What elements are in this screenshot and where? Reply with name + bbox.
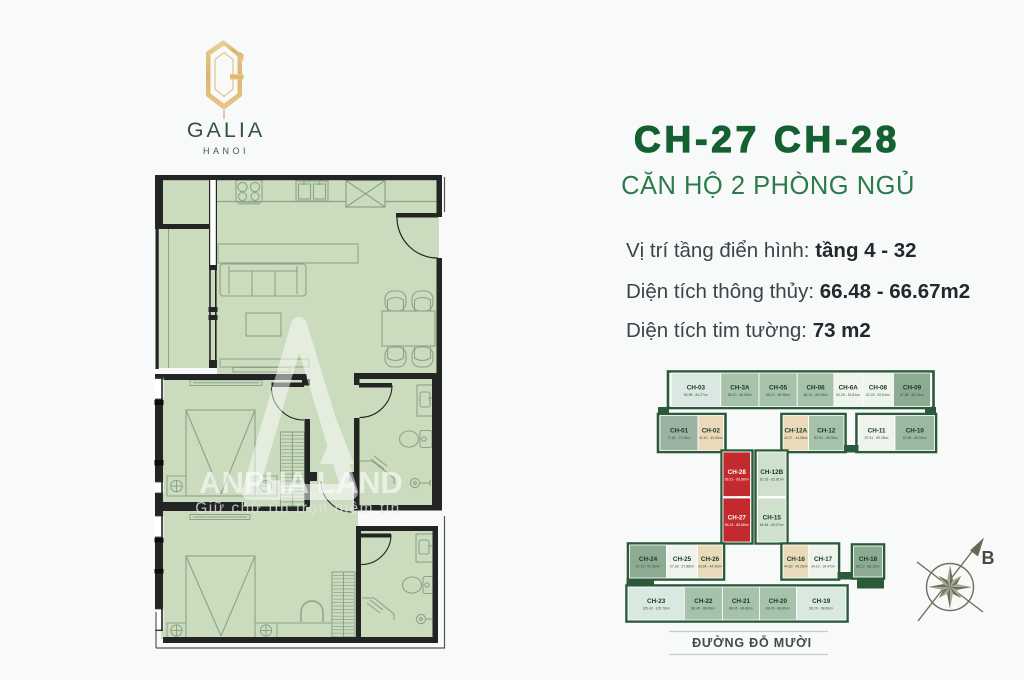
svg-text:88.45 - 88.86m²: 88.45 - 88.86m² (729, 607, 754, 611)
svg-text:CH-23: CH-23 (647, 598, 666, 605)
svg-text:98.29 - 98.96m²: 98.29 - 98.96m² (809, 607, 834, 611)
svg-text:CH-12A: CH-12A (784, 428, 807, 435)
svg-text:CH-16: CH-16 (787, 556, 806, 563)
svg-text:CH-11: CH-11 (868, 428, 886, 435)
svg-text:82.52 - 88.28m²: 82.52 - 88.28m² (814, 436, 839, 440)
svg-text:HANOI: HANOI (203, 146, 249, 156)
svg-text:Diện tích tim tường: 73 m2: Diện tích tim tường: 73 m2 (626, 319, 871, 342)
svg-text:ĐƯỜNG ĐỖ MƯỜI: ĐƯỜNG ĐỖ MƯỜI (692, 635, 812, 650)
svg-text:CH-27: CH-27 (728, 515, 747, 522)
svg-text:B: B (982, 548, 995, 568)
svg-text:88.45 - 88.86m²: 88.45 - 88.86m² (691, 607, 716, 611)
svg-text:88.10 - 88.98m²: 88.10 - 88.98m² (804, 393, 829, 397)
svg-text:CH-18: CH-18 (859, 556, 878, 563)
svg-text:Diện tích thông thủy: 66.48 -: Diện tích thông thủy: 66.48 - 66.67m2 (626, 280, 970, 303)
svg-text:88.10 - 88.98m²: 88.10 - 88.98m² (728, 393, 753, 397)
svg-text:CH-3A: CH-3A (730, 384, 750, 391)
svg-text:CH-28: CH-28 (728, 469, 747, 476)
svg-text:88.10 - 88.98m²: 88.10 - 88.98m² (766, 393, 791, 397)
svg-text:Vị trí tầng điển hình: tầng 4: Vị trí tầng điển hình: tầng 4 - 32 (626, 239, 917, 262)
svg-text:CH-22: CH-22 (694, 598, 713, 605)
svg-text:CH-25: CH-25 (673, 556, 692, 563)
svg-text:CH-17: CH-17 (814, 556, 833, 563)
svg-text:CH-01: CH-01 (670, 428, 689, 435)
svg-text:62.18 - 62.81m²: 62.18 - 62.81m² (760, 477, 785, 481)
svg-text:43.10 - 43.85m²: 43.10 - 43.85m² (699, 436, 724, 440)
svg-text:CĂN HỘ 2 PHÒNG NGỦ: CĂN HỘ 2 PHÒNG NGỦ (621, 170, 915, 200)
svg-text:52.28 - 52.81m²: 52.28 - 52.81m² (836, 393, 861, 397)
svg-text:88.45 - 88.86m²: 88.45 - 88.86m² (766, 607, 791, 611)
svg-text:CH-05: CH-05 (769, 384, 788, 391)
svg-text:44.27 - 44.58m²: 44.27 - 44.58m² (784, 436, 809, 440)
svg-text:87.88 - 88.13m²: 87.88 - 88.13m² (900, 393, 925, 397)
svg-text:CH-08: CH-08 (869, 384, 888, 391)
svg-text:CH-15: CH-15 (763, 515, 782, 522)
svg-text:CH-02: CH-02 (702, 428, 721, 435)
svg-text:44.83 - 45.28m²: 44.83 - 45.28m² (784, 565, 809, 569)
svg-text:CH-26: CH-26 (701, 556, 720, 563)
svg-text:71.84 - 71.98m²: 71.84 - 71.98m² (667, 436, 692, 440)
svg-text:43.84 - 44.26m²: 43.84 - 44.26m² (698, 565, 723, 569)
svg-text:27.33 - 27.88m²: 27.33 - 27.88m² (670, 565, 695, 569)
svg-text:34.13 - 34.47m²: 34.13 - 34.47m² (811, 565, 836, 569)
svg-text:66.21 - 66.68m²: 66.21 - 66.68m² (725, 477, 750, 481)
svg-text:87.51 - 89.28m²: 87.51 - 89.28m² (865, 436, 890, 440)
svg-text:CH-21: CH-21 (732, 598, 751, 605)
svg-text:CH-19: CH-19 (812, 598, 831, 605)
svg-text:66.23 - 66.68m²: 66.23 - 66.68m² (725, 523, 750, 527)
svg-text:GALIA: GALIA (187, 118, 265, 142)
svg-text:CH-06: CH-06 (806, 384, 825, 391)
svg-text:CH-09: CH-09 (903, 384, 922, 391)
svg-text:CH-12B: CH-12B (760, 469, 783, 476)
svg-text:CH-20: CH-20 (769, 598, 788, 605)
svg-text:87.88 - 88.54m²: 87.88 - 88.54m² (903, 436, 928, 440)
svg-text:CH-6A: CH-6A (839, 384, 859, 391)
svg-text:105.42 - 105.78m²: 105.42 - 105.78m² (642, 607, 671, 611)
svg-text:CH-24: CH-24 (639, 556, 658, 563)
svg-text:88.12 - 88.18m²: 88.12 - 88.18m² (856, 565, 881, 569)
svg-text:52.28 - 52.81m²: 52.28 - 52.81m² (866, 393, 891, 397)
svg-text:ANPHA LAND: ANPHA LAND (199, 465, 403, 500)
svg-text:CH-03: CH-03 (687, 384, 706, 391)
svg-text:CH-12: CH-12 (817, 428, 836, 435)
svg-text:CH-27 CH-28: CH-27 CH-28 (634, 119, 900, 160)
svg-text:80.98 - 84.27m²: 80.98 - 84.27m² (684, 393, 709, 397)
svg-text:Giữ chữ tín trọn niềm tin: Giữ chữ tín trọn niềm tin (195, 500, 401, 517)
svg-text:68.48 - 69.07m²: 68.48 - 69.07m² (760, 523, 785, 527)
svg-text:67.10 - 67.56m²: 67.10 - 67.56m² (636, 565, 661, 569)
svg-text:CH-10: CH-10 (906, 428, 925, 435)
